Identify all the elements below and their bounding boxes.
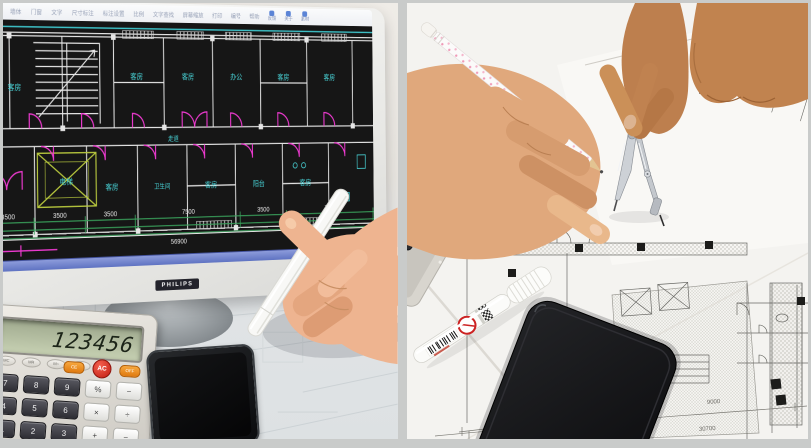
toolbar-item: 帮助 (249, 12, 259, 21)
blueprint-columns (507, 91, 805, 405)
blueprint-linework (455, 14, 808, 439)
toolbar-item: 屏幕缩放 (183, 10, 204, 19)
toolbar-item: 标注设置 (103, 8, 125, 17)
phone-screen (154, 352, 252, 439)
svg-text:2400: 2400 (499, 209, 505, 221)
hand-holding-pencil (407, 21, 606, 260)
monitor-brand-logo: PHILIPS (155, 278, 199, 291)
svg-text:7500: 7500 (182, 209, 195, 216)
off-key: OFF (119, 364, 141, 377)
calc-key: + (81, 425, 108, 439)
drafting-compass-and-hand (608, 3, 808, 226)
toolbar-item: 尺寸标注 (72, 8, 94, 17)
svg-text:客房: 客房 (299, 177, 311, 187)
ac-key: AC (92, 359, 112, 379)
svg-text:3500: 3500 (257, 207, 270, 214)
calculator-display-value: 123456 (50, 328, 136, 357)
toolbar-icon-label: 素材 (301, 18, 309, 23)
paper-note (351, 242, 398, 316)
svg-text:走道: 走道 (168, 133, 179, 142)
calc-key: 1 (3, 419, 16, 439)
fist (690, 3, 808, 108)
svg-text:卫生间: 卫生间 (154, 181, 170, 191)
marker-pen (410, 263, 560, 374)
blueprint-dimension-text: 3400 9000 30700 2400 7500 (499, 143, 722, 433)
svg-text:客房: 客房 (130, 71, 143, 81)
pencil-eraser (419, 21, 438, 40)
svg-text:客房: 客房 (8, 82, 22, 93)
toolbar-item: 门窗 (31, 7, 42, 16)
blueprint-scene: 3400 9000 30700 2400 7500 0 (407, 3, 808, 439)
toolbar-item: 比例 (133, 9, 144, 18)
pencil-tip (587, 158, 604, 174)
monitor: 轴网 墙体 门窗 文字 尺寸标注 标注设置 比例 文字查找 屏幕缩放 打印 编号… (3, 3, 387, 311)
svg-text:客房: 客房 (182, 71, 195, 81)
calc-key: % (84, 379, 111, 399)
compass-lead (660, 215, 664, 226)
svg-text:9000: 9000 (707, 399, 721, 406)
toolbar-item: 打印 (212, 11, 222, 20)
calc-key: 8 (23, 375, 50, 395)
svg-text:7500: 7500 (537, 143, 543, 155)
calc-key: − (115, 381, 142, 401)
toolbar-icon-label: 反馈 (268, 17, 276, 22)
calc-key: 7 (3, 373, 19, 393)
pencil (419, 21, 606, 177)
right-photo-blueprint-scene: 3400 9000 30700 2400 7500 0 (407, 3, 808, 439)
drafting-compass (614, 82, 664, 227)
cad-total-dimension: 56900 (171, 238, 187, 246)
thumbnail (587, 222, 604, 238)
svg-text:客房: 客房 (277, 72, 289, 82)
left-photo-cad-monitor-scene: 轴网 墙体 门窗 文字 尺寸标注 标注设置 比例 文字查找 屏幕缩放 打印 编号… (3, 3, 398, 439)
svg-text:3400: 3400 (499, 418, 514, 425)
svg-text:办公: 办公 (230, 72, 243, 82)
svg-text:客房: 客房 (105, 181, 118, 192)
svg-text:3500: 3500 (53, 213, 67, 221)
toolbar-feedback-item: 反馈 (268, 11, 276, 22)
svg-text:7000: 7000 (325, 205, 337, 212)
toolbar-material-item: 素材 (301, 11, 309, 22)
calc-key: − (112, 427, 139, 439)
blueprint-border-lines (712, 3, 808, 75)
svg-text:3500: 3500 (3, 214, 15, 222)
calc-key: 4 (3, 396, 17, 416)
red-logo-icon (455, 313, 479, 337)
calculator-keypad: 7 8 9 % − 4 5 6 × ÷ 1 2 3 + − 0 00 . = (3, 373, 143, 439)
calculator-function-row: CE AC OFF (63, 357, 141, 381)
svg-text:0: 0 (407, 206, 413, 217)
calc-key: × (83, 402, 110, 422)
toolbar-item: 文字查找 (153, 9, 174, 18)
cad-drawing-area: 客房 客房 客房 办公 客房 客房 走道 电梯 客房 卫生间 客房 阳台 (3, 19, 374, 262)
smartphone-on-blueprint (455, 290, 688, 439)
calc-key: ÷ (114, 404, 141, 424)
svg-text:阳台: 阳台 (253, 178, 265, 188)
smartphone (146, 343, 261, 439)
calc-key: 9 (54, 377, 81, 397)
memory-key: MC (3, 355, 16, 366)
toolbar-icon-label: 关于 (284, 17, 292, 22)
toolbar-item: 墙体 (10, 6, 21, 15)
blueprint-black-wall (699, 61, 721, 97)
black-calculator-corner: 0 1 2 (407, 131, 475, 310)
ce-key: CE (63, 360, 85, 373)
cad-floorplan: 客房 客房 客房 办公 客房 客房 走道 电梯 客房 卫生间 客房 阳台 (3, 19, 374, 262)
svg-text:客房: 客房 (205, 179, 217, 189)
calc-key: 2 (19, 421, 46, 439)
svg-text:3500: 3500 (104, 211, 118, 219)
barcode (423, 327, 460, 357)
calc-key: 6 (52, 400, 79, 420)
photo-collage-frame: 轴网 墙体 门窗 文字 尺寸标注 标注设置 比例 文字查找 屏幕缩放 打印 编号… (0, 0, 811, 448)
calc-key: 5 (21, 398, 48, 418)
thumbnail (621, 113, 638, 132)
toolbar-about-item: 关于 (284, 11, 292, 22)
memory-key: MR (21, 357, 41, 368)
compass-knob (627, 82, 638, 93)
calc-key: 3 (50, 423, 77, 439)
toolbar-item: 文字 (51, 7, 62, 16)
svg-text:客房: 客房 (324, 72, 336, 82)
svg-text:电梯: 电梯 (59, 176, 73, 187)
svg-text:30700: 30700 (699, 426, 717, 433)
calculator: 123456 MC MR M− M+ CE AC OFF 7 8 9 % − 4… (3, 303, 158, 439)
blueprint-dimension-lines (435, 403, 807, 439)
toolbar-item: 编号 (231, 11, 241, 20)
monitor-display: 轴网 墙体 门窗 文字 尺寸标注 标注设置 比例 文字查找 屏幕缩放 打印 编号… (3, 3, 374, 273)
